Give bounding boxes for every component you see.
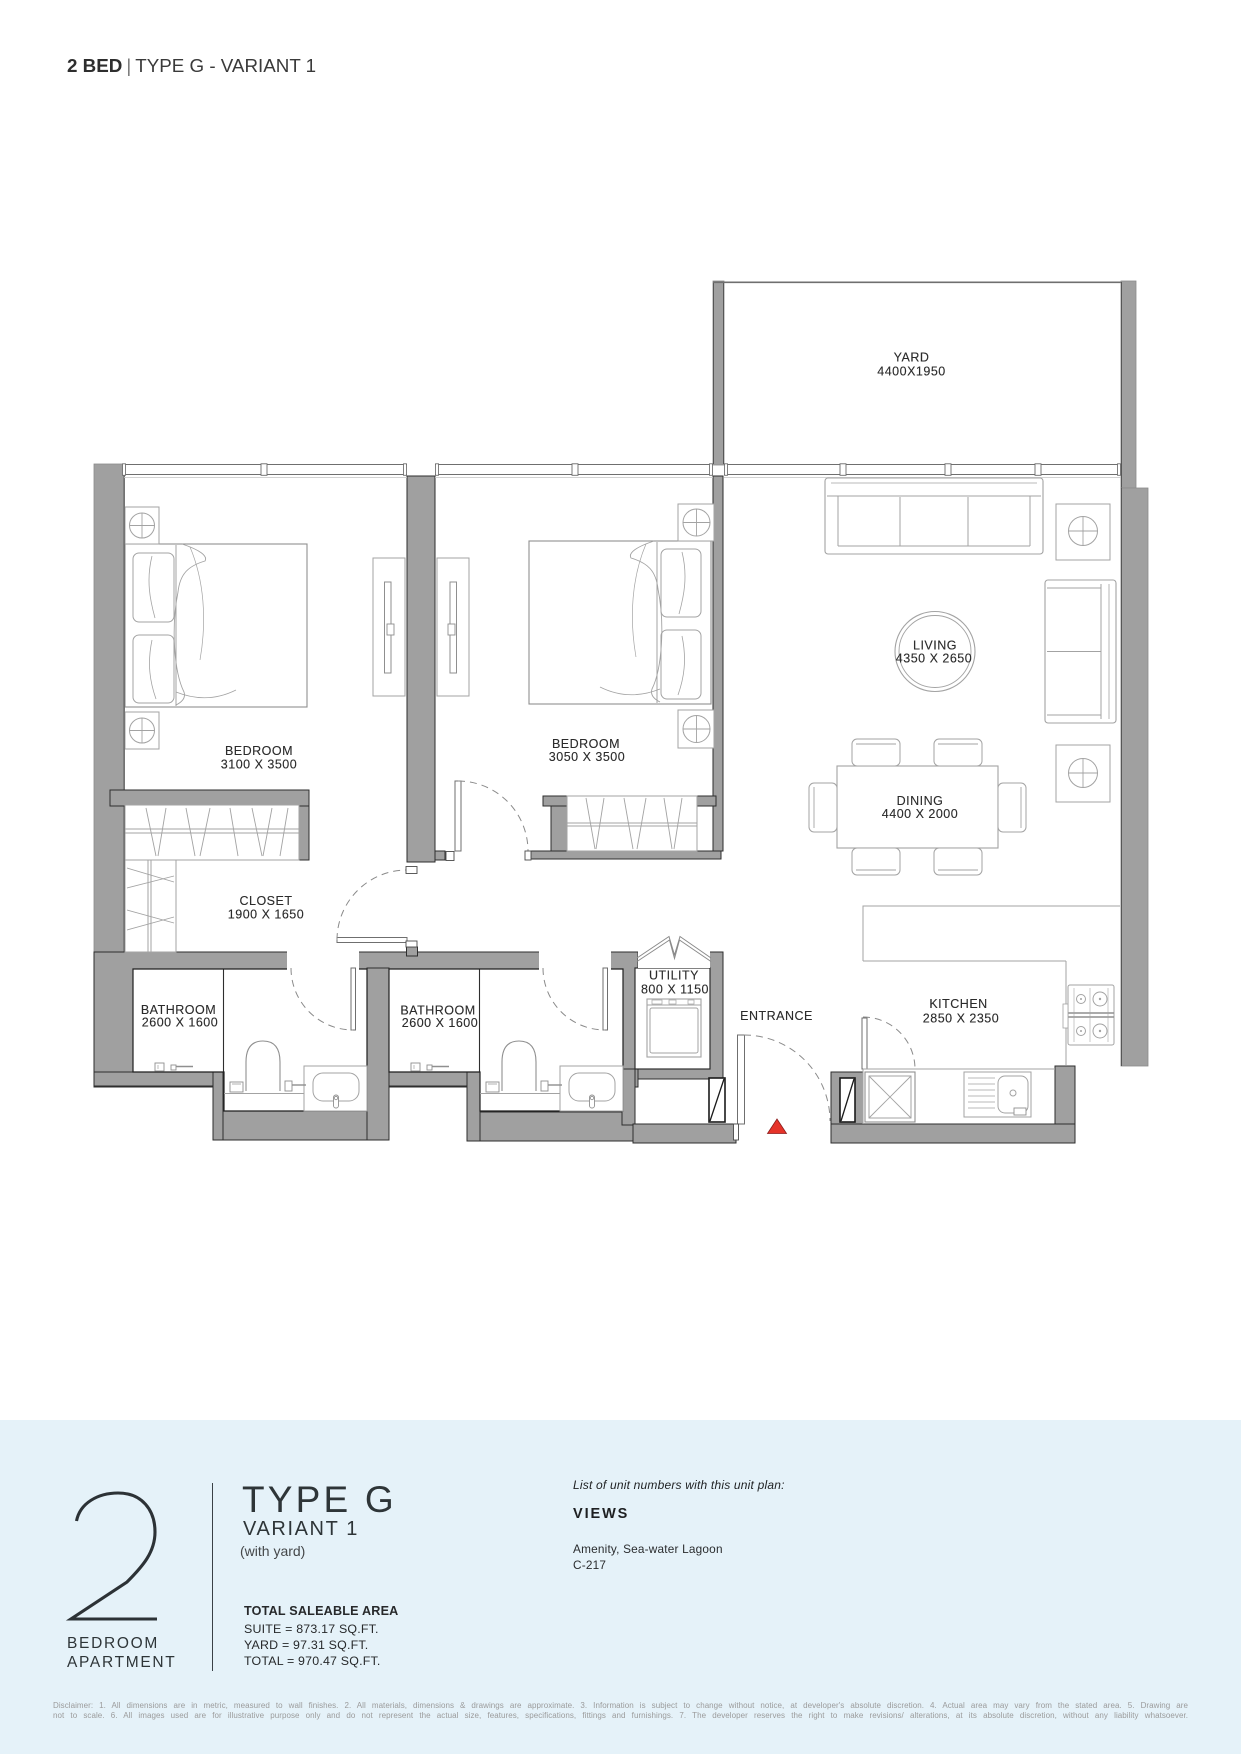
svg-text:2600 X 1600: 2600 X 1600 [402, 1016, 478, 1030]
svg-text:4400 X 2000: 4400 X 2000 [882, 807, 958, 821]
svg-text:LIVING: LIVING [913, 639, 957, 653]
svg-text:BEDROOM: BEDROOM [225, 744, 293, 758]
svg-text:YARD: YARD [894, 351, 930, 365]
svg-text:ENTRANCE: ENTRANCE [740, 1009, 813, 1023]
svg-text:3050 X 3500: 3050 X 3500 [549, 750, 625, 764]
svg-text:1900 X 1650: 1900 X 1650 [228, 908, 304, 922]
svg-text:4350 X 2650: 4350 X 2650 [896, 652, 972, 666]
svg-text:800 X 1150: 800 X 1150 [641, 983, 709, 997]
svg-text:BEDROOM: BEDROOM [552, 737, 620, 751]
svg-text:2600 X 1600: 2600 X 1600 [142, 1016, 218, 1030]
svg-text:DINING: DINING [897, 794, 944, 808]
svg-text:CLOSET: CLOSET [239, 894, 292, 908]
svg-text:KITCHEN: KITCHEN [929, 997, 987, 1011]
svg-text:2850 X 2350: 2850 X 2350 [923, 1012, 999, 1026]
svg-text:4400X1950: 4400X1950 [877, 365, 945, 379]
svg-text:UTILITY: UTILITY [649, 969, 699, 983]
svg-text:3100 X 3500: 3100 X 3500 [221, 758, 297, 772]
